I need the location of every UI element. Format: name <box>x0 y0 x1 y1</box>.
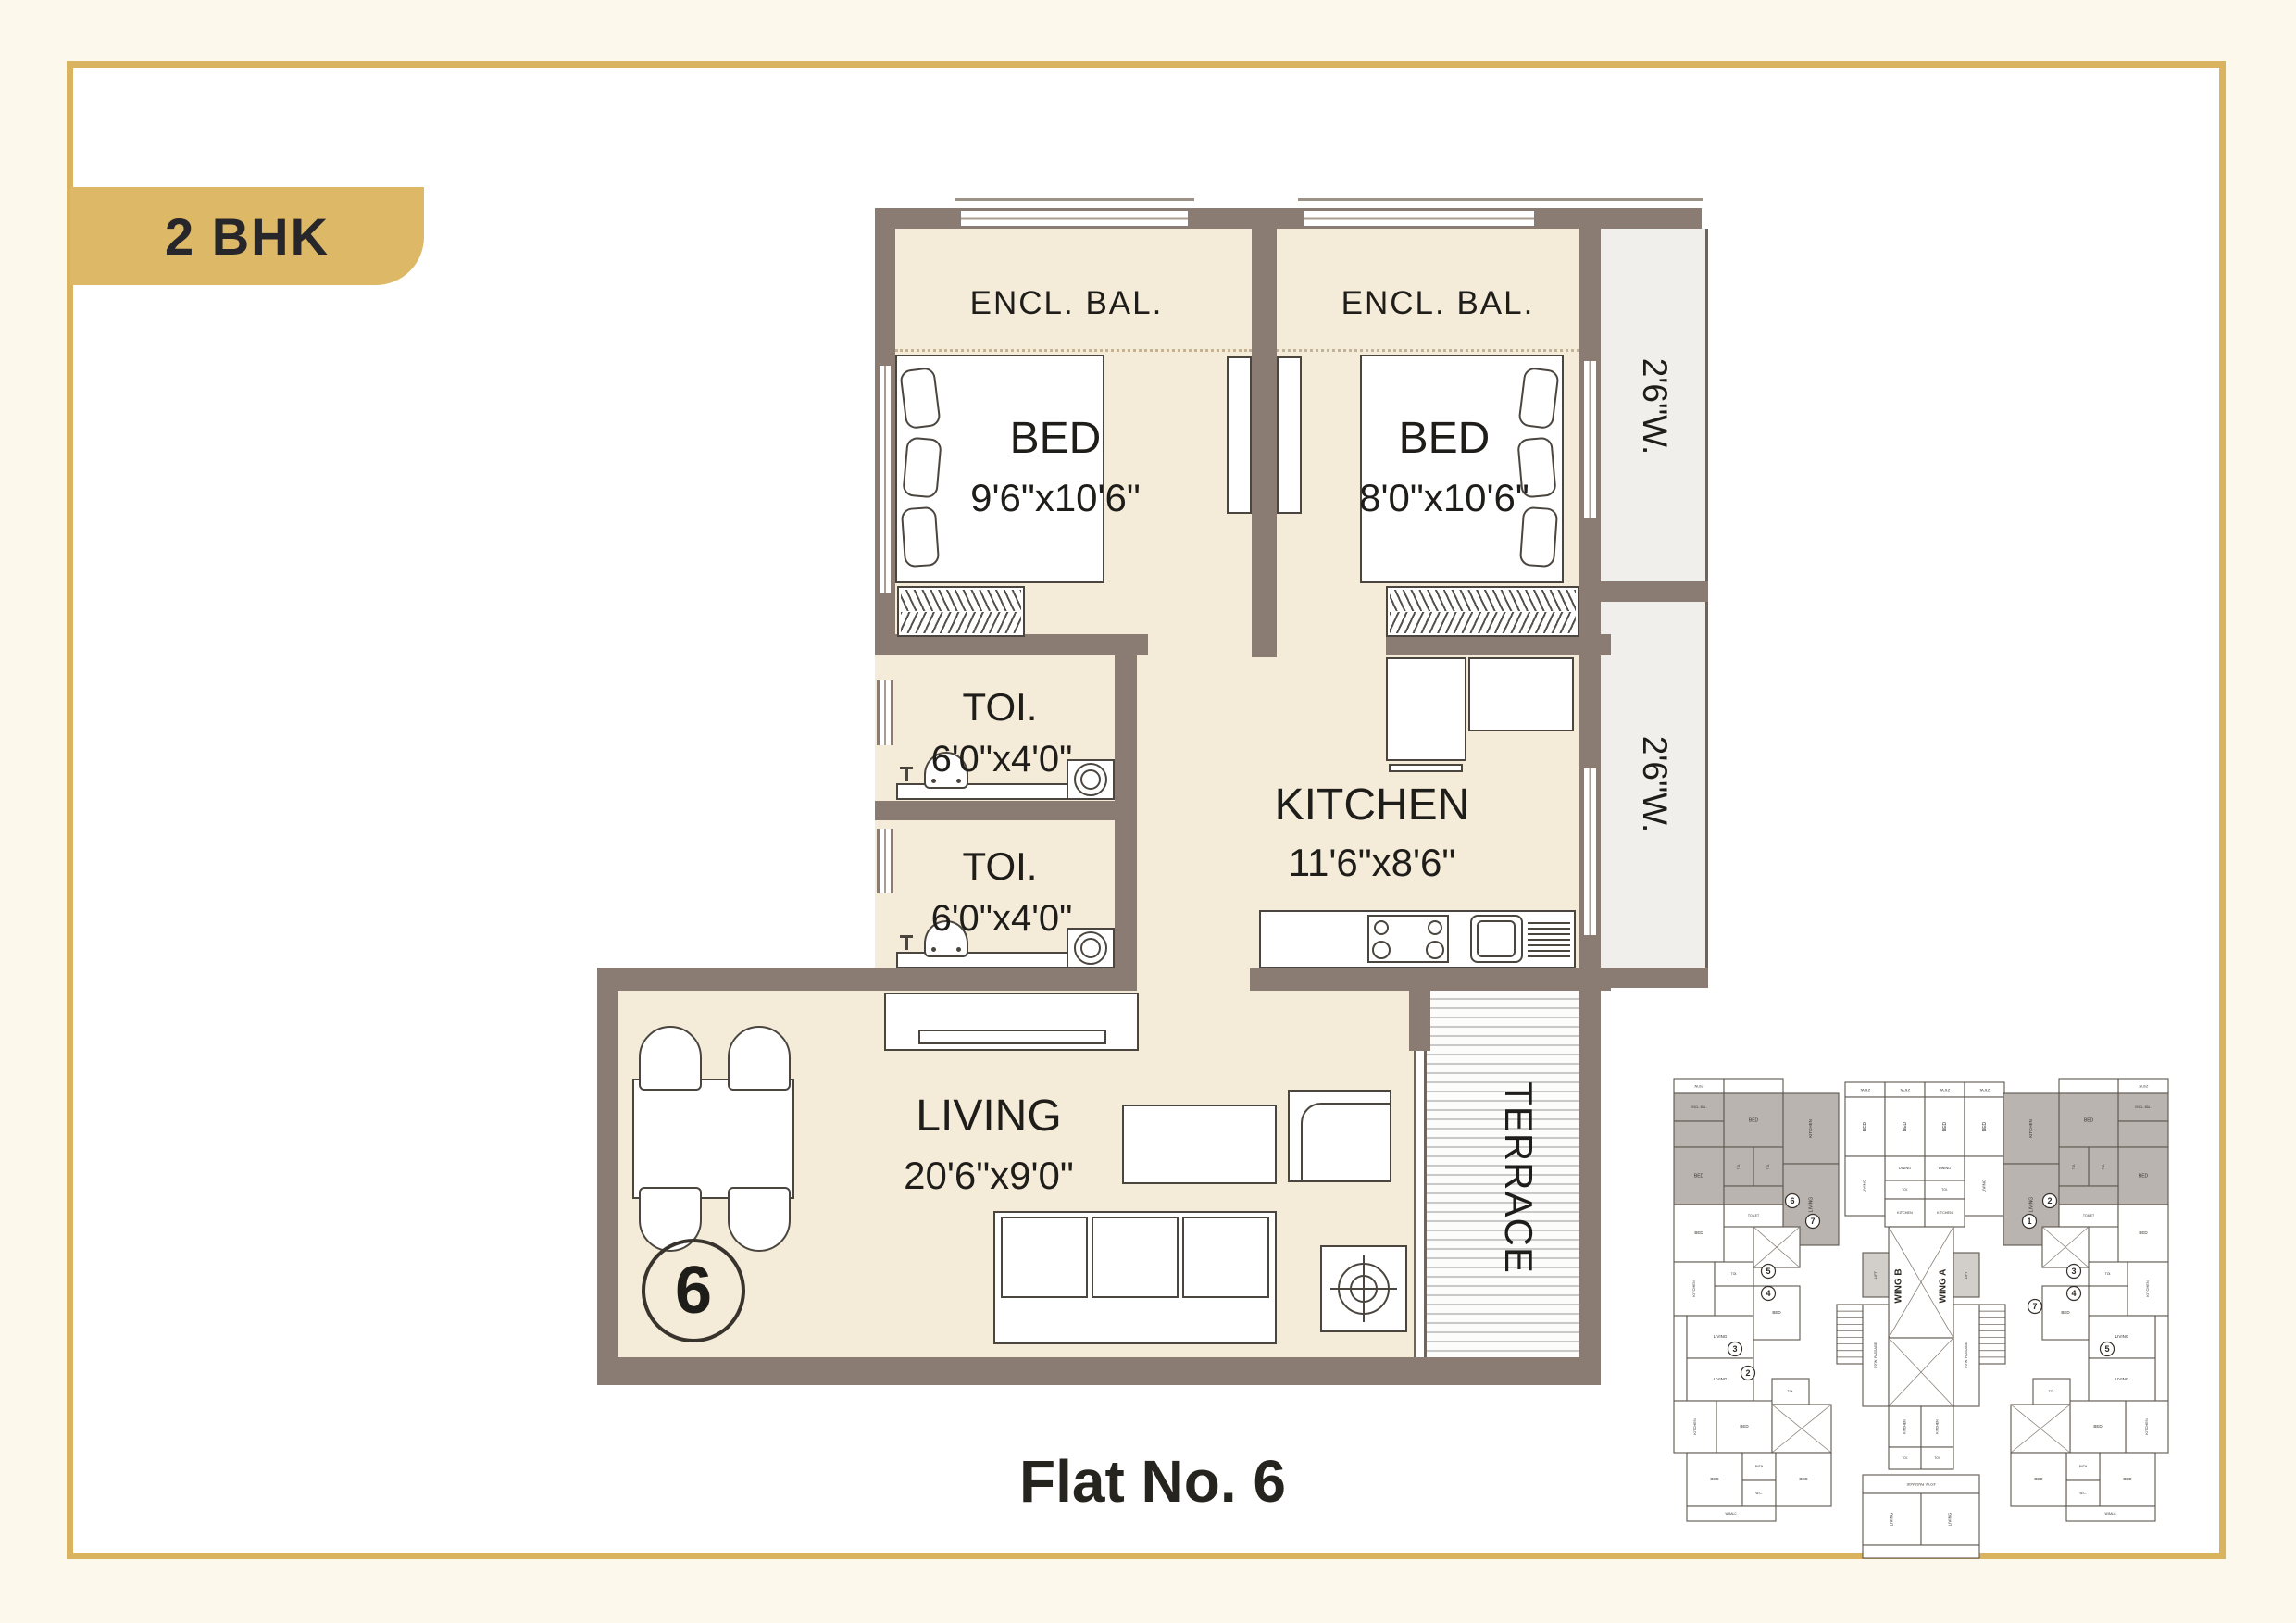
keyplan-room-label: LIVING <box>1808 1197 1814 1213</box>
label-encl-bal-2: ENCL. BAL. <box>1299 285 1577 322</box>
wall-terrace-right <box>1579 968 1601 1357</box>
keyplan-room-label: LIVING <box>1863 1179 1867 1192</box>
stove-burner <box>1428 920 1442 935</box>
keyplan-room <box>2059 1186 2118 1205</box>
wall-below-bed1 <box>875 634 1148 655</box>
keyplan-room-label: 5'0"W. PASSAGE <box>1874 1342 1878 1368</box>
keyplan-room-label: LIVING <box>1714 1334 1728 1339</box>
keyplan-flat-number: 7 <box>1810 1217 1815 1226</box>
keyplan-room-label: TOI. <box>1934 1456 1940 1460</box>
keyplan-room-label: BED <box>1749 1117 1759 1123</box>
keyplan-room-label: TOI. <box>2102 1164 2105 1169</box>
label-toi1: TOI. <box>861 685 1139 730</box>
keyplan-room <box>1837 1305 1863 1364</box>
keyplan-room-label: BED <box>1710 1477 1719 1481</box>
keyplan-room <box>2059 1079 2118 1093</box>
wardrobe-panel-left <box>1227 356 1252 514</box>
label-encl-bal-1: ENCL. BAL. <box>928 285 1205 322</box>
sofa-cushion <box>1092 1217 1179 1298</box>
label-living-dims: 20'6"x9'0" <box>850 1154 1128 1198</box>
keyplan-room-label: LIVING <box>1982 1179 1987 1192</box>
keyplan-room-label: BED <box>1863 1121 1868 1131</box>
keyplan-room-label: DINING <box>1899 1167 1911 1170</box>
stove-burner <box>1372 941 1391 959</box>
wall-living-bottom <box>597 1357 1601 1385</box>
keyplan-flat-number: 3 <box>2071 1267 2076 1276</box>
keyplan-room-label: 2'6"W. <box>1860 1088 1870 1092</box>
keyplan-flat-number: 2 <box>2047 1196 2052 1205</box>
keyplan-room-label: BATH <box>1755 1465 1764 1468</box>
bed1-side-window <box>877 366 893 593</box>
keyplan-room-label: 2'6"W. <box>1694 1084 1704 1088</box>
keyplan-room-label: TOILET <box>1748 1214 1760 1217</box>
label-bed2-dims: 8'0"x10'6" <box>1305 476 1583 520</box>
keyplan-room-label: BED <box>1942 1121 1948 1131</box>
keyplan-room-label: TOI. <box>2072 1164 2076 1169</box>
tv-set <box>918 1030 1106 1044</box>
label-walkway-bottom: 2'6"W. <box>1635 645 1674 923</box>
keyplan-room-label: KITCHEN <box>1937 1211 1953 1215</box>
wall-terrace-stub <box>1409 991 1430 1051</box>
keyplan-room <box>1979 1305 2005 1364</box>
keyplan-room-label: KITCHEN <box>2145 1280 2150 1297</box>
keyplan-room-label: BATH <box>2079 1465 2088 1468</box>
keyplan-flat-number: 3 <box>1732 1344 1737 1354</box>
wall-living-left <box>597 968 618 1385</box>
keyplan-flat-number: 2 <box>1745 1368 1750 1378</box>
unit-number-circle: 6 <box>642 1239 745 1342</box>
dining-chair <box>728 1187 791 1252</box>
keyplan-room-label: TOILET <box>2083 1214 2095 1217</box>
keyplan-flat-number: 4 <box>2071 1289 2076 1298</box>
dining-chair <box>639 1026 702 1091</box>
bed2-side-window <box>1581 361 1599 518</box>
keyplan-room <box>2118 1121 2168 1147</box>
keyplan-room <box>1863 1545 1979 1558</box>
balcony2-dotted-line <box>1277 349 1579 352</box>
keyplan-room <box>1724 1186 1783 1205</box>
keyplan-room-label: 5'0"W. PASSAGE <box>1965 1342 1968 1368</box>
keyplan-room-label: LIFT <box>1873 1270 1878 1279</box>
label-bed1-dims: 9'6"x10'6" <box>917 476 1194 520</box>
keyplan-room-label: W.C. <box>1755 1492 1762 1495</box>
kitchen-cabinet-shelf <box>1389 764 1463 772</box>
keyplan-room-label: KITCHEN <box>2144 1418 2149 1435</box>
keyplan-room-label: BED <box>1799 1477 1808 1481</box>
sofa-cushion <box>1001 1217 1088 1298</box>
keyplan-room-label: LIVING <box>2115 1377 2129 1381</box>
keyplan-room-label: TOI. <box>1902 1188 1908 1192</box>
label-toi2-dims: 6'0"x4'0" <box>863 898 1141 940</box>
terrace-sliding-window <box>1414 1051 1427 1357</box>
label-walkway-top: 2'6"W. <box>1635 268 1674 545</box>
kitchen-drainboard <box>1528 918 1570 961</box>
keyplan-room-label: BED <box>2093 1424 2103 1429</box>
keyplan-room-label: KITCHEN <box>1897 1211 1913 1215</box>
washer-cross-v <box>1363 1255 1365 1322</box>
keyplan-wing-label: WING B <box>1894 1268 1904 1303</box>
keyplan-room-label: LIVING <box>1714 1377 1728 1381</box>
keyplan-room-label: BED <box>1694 1230 1703 1235</box>
balcony2-window <box>1304 208 1534 229</box>
keyplan-room-label: BED <box>1772 1310 1781 1315</box>
wall-toilet-mid <box>875 801 1137 820</box>
keyplan-room-label: ENCL. BAL. <box>2135 1105 2151 1109</box>
wardrobe-bed1 <box>897 586 1025 637</box>
keyplan-room-label: 2'6"W. <box>2139 1084 2149 1088</box>
wardrobe-bed2 <box>1386 586 1579 637</box>
sofa-cushion <box>1182 1217 1269 1298</box>
toi2-basin-inner <box>1080 938 1101 958</box>
label-toi2: TOI. <box>861 844 1139 889</box>
label-bed2: BED <box>1305 413 1583 464</box>
keyplan-flat-number: 5 <box>2104 1344 2109 1354</box>
dining-table <box>632 1079 794 1199</box>
keyplan-room-label: 2'6"W. <box>1900 1088 1910 1092</box>
keyplan: 2'6"W.2'6"W.2'6"W.2'6"W.BEDBEDBEDBEDDINI… <box>1666 1071 2176 1576</box>
stove-burner <box>1374 920 1389 935</box>
keyplan-room-label: LIVING <box>1890 1512 1894 1526</box>
keyplan-room-label: BED <box>1740 1424 1749 1429</box>
kitchen-cabinet <box>1386 657 1466 761</box>
armchair-inner <box>1301 1103 1390 1180</box>
keyplan-room-label: LIVING <box>1948 1512 1953 1526</box>
keyplan-room-label: KITCHEN <box>1808 1119 1813 1138</box>
wall-strip-divider <box>1601 581 1708 602</box>
keyplan-room-label: TOI. <box>1766 1164 1770 1169</box>
keyplan-room-label: DINING <box>1939 1167 1951 1170</box>
keyplan-wing-label: WING A <box>1939 1269 1949 1304</box>
stove-burner <box>1426 941 1444 959</box>
keyplan-room-label: TOI. <box>1788 1390 1794 1393</box>
keyplan-room-label: TOI. <box>2105 1272 2112 1276</box>
keyplan-room <box>1674 1121 1724 1147</box>
keyplan-flat-number: 1 <box>2027 1217 2031 1226</box>
label-kitchen-dims: 11'6"x8'6" <box>1233 841 1511 885</box>
kitchen-side-window <box>1581 768 1599 935</box>
keyplan-room-label: KITCHEN <box>1935 1419 1939 1434</box>
keyplan-room-label: W.C. <box>2079 1492 2086 1495</box>
keyplan-room-label: BED <box>2123 1477 2132 1481</box>
label-toi1-dims: 6'0"x4'0" <box>863 739 1141 780</box>
keyplan-room-label: TOI. <box>1731 1272 1738 1276</box>
keyplan-room-label: LIFT <box>1964 1270 1968 1279</box>
flat-caption: Flat No. 6 <box>1014 1447 1291 1516</box>
wall-kitchen-bottom <box>1250 968 1611 991</box>
balcony1-window <box>961 208 1188 229</box>
keyplan-flat-number: 4 <box>1766 1289 1770 1298</box>
label-bed1: BED <box>917 413 1194 464</box>
keyplan-room-label: BED <box>1694 1173 1704 1179</box>
wardrobe-panel-right <box>1277 356 1302 514</box>
label-kitchen: KITCHEN <box>1233 780 1511 830</box>
keyplan-room-label: BED <box>1903 1121 1908 1131</box>
keyplan-room-label: 2'6"W. <box>1940 1088 1950 1092</box>
keyplan-room-label: W.BALC. <box>1726 1512 1738 1516</box>
keyplan-room-label: BED <box>2139 1173 2149 1179</box>
kitchen-fridge <box>1468 657 1574 731</box>
keyplan-room-label: BED <box>1982 1121 1988 1131</box>
keyplan-room-label: BED <box>2034 1477 2043 1481</box>
coffee-table <box>1122 1105 1277 1184</box>
keyplan-room-label: LIVING <box>2115 1334 2129 1339</box>
keyplan-room-label: TOI. <box>1902 1456 1907 1460</box>
keyplan-room <box>1724 1079 1783 1093</box>
keyplan-room-label: KITCHEN <box>1692 1418 1697 1435</box>
dining-chair <box>728 1026 791 1091</box>
wall-below-bed2 <box>1386 634 1611 655</box>
wall-dining-top <box>597 968 1137 991</box>
keyplan-room-label: ENCL. BAL. <box>1691 1105 1706 1109</box>
balcony1-dotted-line <box>895 349 1252 352</box>
keyplan-room-label: TOI. <box>1737 1164 1741 1169</box>
floorplan-page: { "badge": { "label": "2 BHK" }, "captio… <box>0 0 2296 1623</box>
keyplan-room-label: LIVING <box>2028 1197 2034 1213</box>
keyplan-room-label: KITCHEN <box>1691 1280 1696 1297</box>
keyplan-room-label: KITCHEN <box>1903 1419 1906 1434</box>
window-sill-line <box>1298 198 1703 201</box>
keyplan-room-label: W.BALC. <box>2105 1512 2117 1516</box>
keyplan-room <box>1674 1316 1687 1401</box>
unit-number: 6 <box>675 1253 712 1329</box>
keyplan-room-label: TOI. <box>2049 1390 2055 1393</box>
keyplan-room-label: TOI. <box>1941 1188 1948 1192</box>
keyplan-room-label: BED <box>2139 1230 2148 1235</box>
window-sill-line <box>955 198 1194 201</box>
wall-strip2-bottom <box>1601 968 1708 988</box>
keyplan-room-label: 4'0"W. PASSAGE <box>1906 1482 1936 1487</box>
keyplan-flat-number: 6 <box>1790 1196 1794 1205</box>
keyplan-room <box>2155 1316 2168 1401</box>
keyplan-room-label: KITCHEN <box>2028 1119 2033 1138</box>
label-terrace: TERRACE <box>1496 1039 1541 1317</box>
keyplan-room-label: BED <box>2061 1310 2070 1315</box>
keyplan-room-label: BED <box>2084 1117 2094 1123</box>
kitchen-sink-basin <box>1477 920 1516 957</box>
wall-mid-bedrooms <box>1252 229 1277 657</box>
label-living: LIVING <box>850 1091 1128 1142</box>
keyplan-flat-number: 5 <box>1766 1267 1770 1276</box>
keyplan-room-label: 2'6"W. <box>1979 1088 1990 1092</box>
keyplan-flat-number: 7 <box>2032 1302 2037 1311</box>
